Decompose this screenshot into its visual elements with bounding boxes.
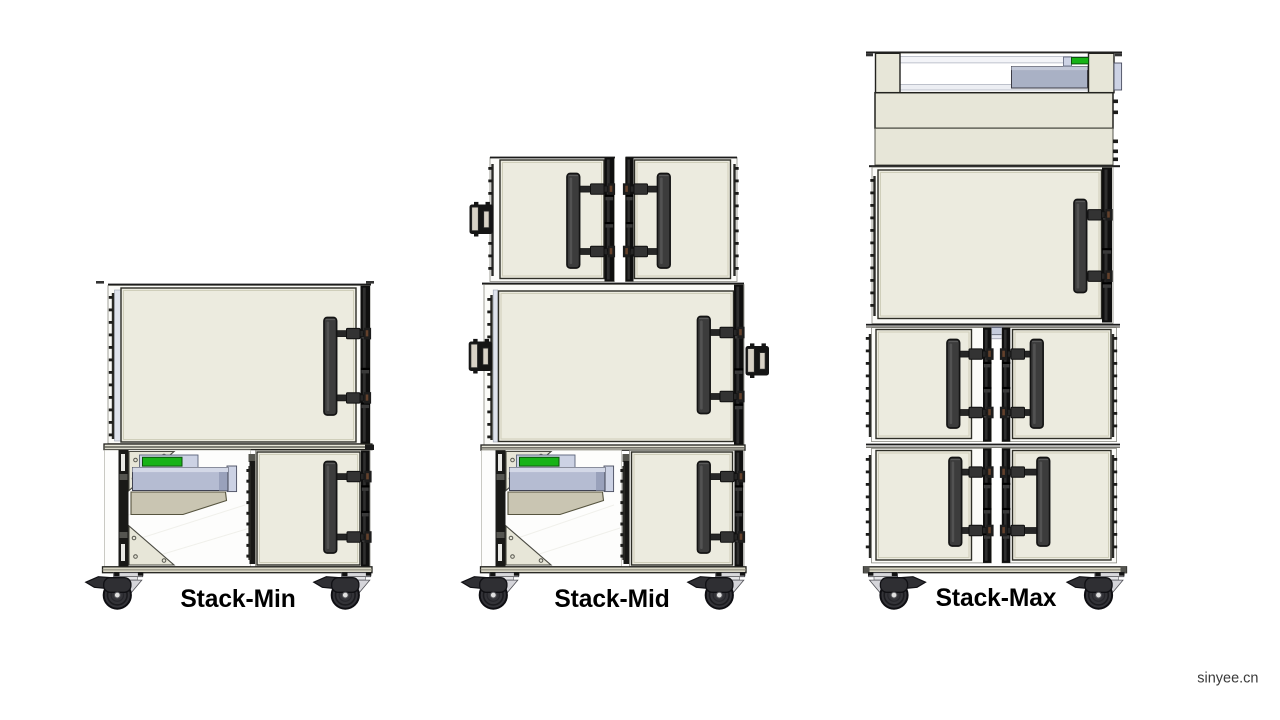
svg-text:Stack-Mid: Stack-Mid [554, 586, 669, 613]
svg-text:sinyee.cn: sinyee.cn [1197, 671, 1258, 687]
svg-text:Stack-Max: Stack-Max [936, 585, 1057, 612]
svg-text:Stack-Min: Stack-Min [180, 586, 295, 613]
